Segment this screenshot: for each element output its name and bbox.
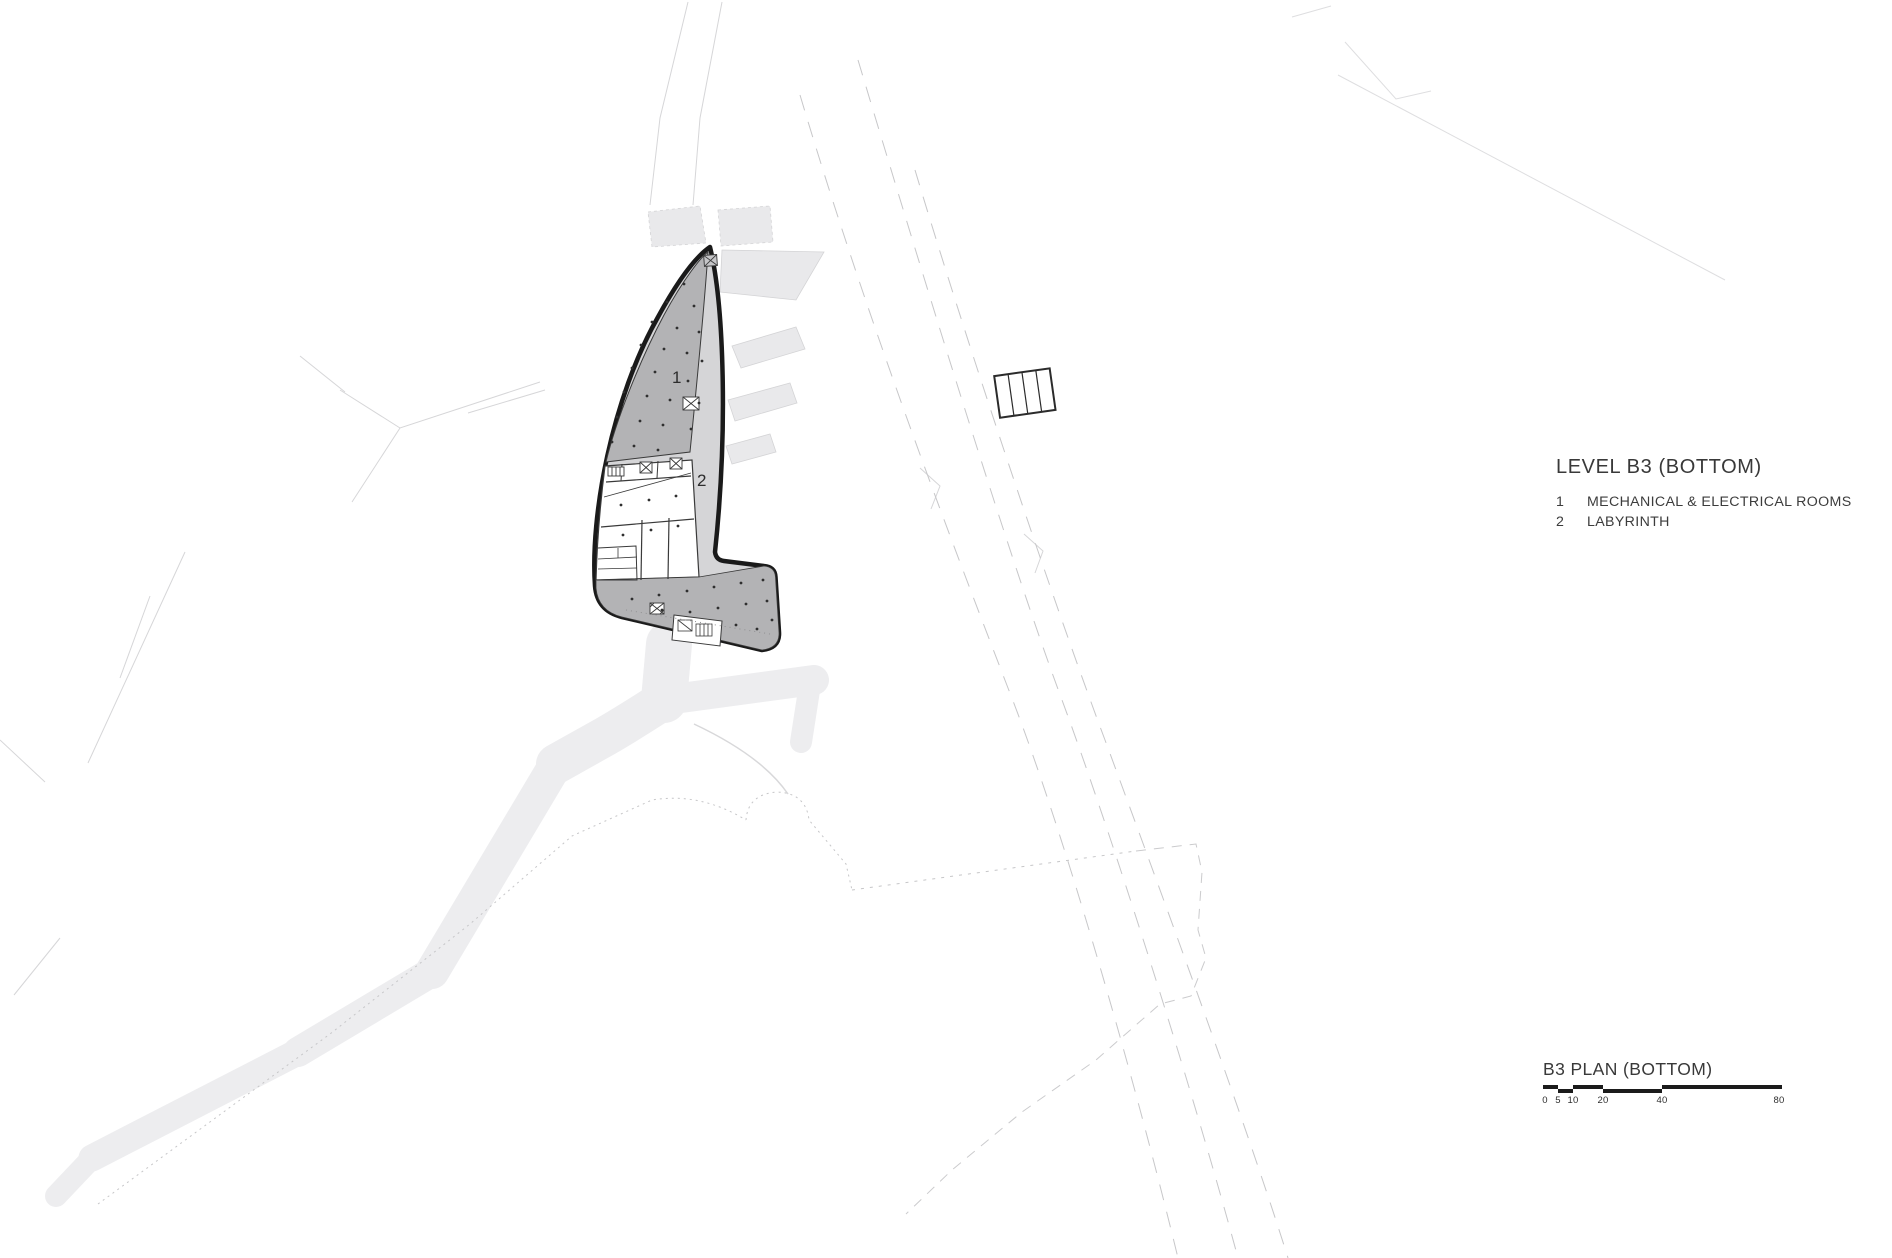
site-context-lines-topright: [1292, 6, 1725, 280]
site-context: [0, 2, 1725, 1258]
scale-tick: 20: [1598, 1095, 1609, 1106]
legend-item-number: 2: [1556, 513, 1587, 533]
legend-item-label: LABYRINTH: [1587, 513, 1670, 533]
scale-bar: [1543, 1085, 1782, 1094]
site-road-dashed: [800, 60, 1288, 1258]
shaft-icon: [683, 397, 699, 410]
scale-tick: 0: [1542, 1095, 1547, 1106]
level-title: LEVEL B3 (BOTTOM): [1556, 456, 1852, 479]
site-walkway-edge-curve: [694, 724, 788, 794]
drawing-sheet: 1 2 LEVEL B3 (BOTTOM) 1 MECHANICAL & ELE…: [0, 0, 1892, 1258]
scale-bar-segment: [1558, 1089, 1573, 1093]
site-dashed-parcel: [906, 844, 1206, 1214]
legend-panel: LEVEL B3 (BOTTOM) 1 MECHANICAL & ELECTRI…: [1556, 456, 1852, 532]
site-dotted-boundaries: [98, 792, 1136, 1204]
shaft-icon: [704, 255, 718, 267]
legend-item: 2 LABYRINTH: [1556, 513, 1852, 533]
scale-bar-segment: [1573, 1085, 1603, 1089]
scale-bar-segment: [1662, 1085, 1782, 1089]
legend-item: 1 MECHANICAL & ELECTRICAL ROOMS: [1556, 493, 1852, 513]
legend-item-number: 1: [1556, 493, 1587, 513]
outbuilding-plan: [994, 368, 1055, 417]
scale-tick: 80: [1774, 1095, 1785, 1106]
scale-tick: 5: [1555, 1095, 1560, 1106]
hatch-box-icon: [640, 462, 652, 473]
scale-tick: 40: [1657, 1095, 1668, 1106]
shaft-icon: [650, 603, 664, 614]
scale-tick-labels: 0 5 10 20 40 80: [1543, 1095, 1793, 1107]
plan-title: B3 PLAN (BOTTOM): [1543, 1059, 1823, 1080]
scale-tick: 10: [1568, 1095, 1579, 1106]
room-label-labyrinth: 2: [697, 471, 706, 490]
room-label-mechanical: 1: [672, 368, 681, 387]
titleblock: B3 PLAN (BOTTOM) 0 5 10 20 40 80: [1543, 1059, 1823, 1107]
legend-item-label: MECHANICAL & ELECTRICAL ROOMS: [1587, 493, 1852, 513]
foot-service-notch: [672, 615, 722, 646]
scale-bar-segment: [1603, 1089, 1662, 1093]
shaft-icon: [670, 458, 682, 469]
grill-icon: [608, 467, 624, 476]
scale-bar-segment: [1543, 1085, 1558, 1089]
